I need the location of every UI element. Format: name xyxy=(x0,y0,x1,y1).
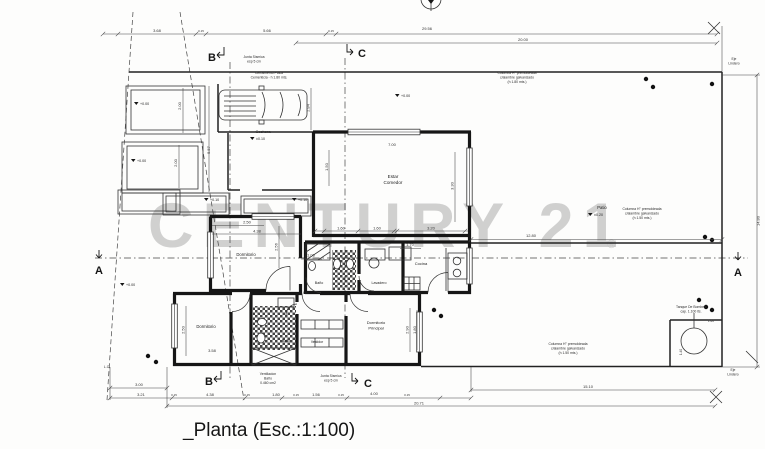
column-dot xyxy=(710,82,714,86)
dimension-label: 1.80 xyxy=(412,325,417,334)
century21-watermark: CENTURY 21 ® xyxy=(148,191,627,261)
dimension-label: 1.50 xyxy=(324,162,329,171)
car-top-view xyxy=(219,86,307,124)
level-marker: +0.00 xyxy=(126,283,135,287)
dimension-label: 0.15 xyxy=(171,393,177,397)
annotation-columna-right: Columna H° premoldeada xyxy=(622,207,661,211)
annotation-cerramiento-placa: Cerramiento Placa xyxy=(255,71,283,75)
annotation-columna-top-right: Columna H° premoldeada xyxy=(497,71,536,75)
dimension-label: 3.21 xyxy=(137,392,146,397)
annotation-tanque-bombeo: cap. 1.100 lts. xyxy=(680,309,701,313)
dimension-label: 20.71 xyxy=(414,401,425,406)
annotation-junta-sismica-top: esp 5 cm xyxy=(247,59,261,63)
annotation-columna-right: c/alambre galvanizado xyxy=(625,211,659,215)
dimension-label: 3.20 xyxy=(427,226,436,231)
level-marker: +0.10 xyxy=(298,198,307,202)
dimension-label: 4.38 xyxy=(206,392,215,397)
dimension-label: 2.90 xyxy=(405,325,410,334)
room-label-dormitorio-principal: Principal xyxy=(368,325,383,330)
section-letter-b-bottom: B xyxy=(205,376,213,388)
level-marker-icon xyxy=(120,283,125,286)
section-letter-a-right: A xyxy=(734,267,742,279)
room-label-dormitorio-1: Dormitorio xyxy=(236,252,256,257)
level-marker-icon xyxy=(134,102,139,105)
annotation-eje-lindero-bottom: Eje xyxy=(731,368,736,372)
room-label-patio: Patio xyxy=(597,205,607,210)
section-letter-c-bottom: C xyxy=(364,378,372,390)
column-dot xyxy=(146,354,150,358)
column-dot xyxy=(439,314,443,318)
annotation-ventilacion-banio: 0.460 cm2 xyxy=(260,381,276,385)
level-marker: +0.00 xyxy=(140,102,149,106)
north-compass-icon xyxy=(421,0,441,11)
annotation-eje-lindero-top: Lindero xyxy=(728,61,739,65)
dimension-label: 1.70 xyxy=(406,242,415,247)
pump-tank xyxy=(670,313,722,366)
level-marker: ±0.10 xyxy=(256,137,265,141)
dimension-label: 3.00 xyxy=(135,382,144,387)
room-label-hall: Hall xyxy=(303,291,309,295)
survey-cross-marks xyxy=(708,22,758,403)
dimension-label: 2.50 xyxy=(243,220,252,225)
dimension-label: 0.15 xyxy=(198,29,204,33)
annotation-columna-bottom: Columna H° premoldeada xyxy=(548,342,587,346)
dimension-label: 4.00 xyxy=(370,391,379,396)
dimension-label: 7.00 xyxy=(388,142,397,147)
column-dot xyxy=(651,85,655,89)
dimension-label: 2.84 xyxy=(306,103,311,112)
dimension-label: 3.68 xyxy=(153,28,162,33)
room-label-estar-comedor: Comedor xyxy=(384,180,403,185)
column-dot xyxy=(432,308,436,312)
dimension-label: 1.60 xyxy=(373,226,382,231)
registered-mark-icon: ® xyxy=(607,237,616,251)
annotation-junta-sismica-top: Junta Sismica xyxy=(243,55,264,59)
dimension-label: 15.10 xyxy=(583,384,594,389)
room-label-estar-comedor: Estar xyxy=(388,174,399,179)
annotation-ventilacion-banio: Baño xyxy=(264,376,272,380)
room-label-banio-2: Baño xyxy=(282,339,290,343)
dimension-label: 0.15 xyxy=(293,393,299,397)
dimension-label: 2.00 xyxy=(173,158,178,167)
dimension-label: 5.66 xyxy=(263,28,272,33)
dimension-label: 4.38 xyxy=(253,229,262,234)
floor-plan-drawing: CENTURY 21 ® xyxy=(0,0,765,449)
column-dot xyxy=(710,238,714,242)
room-label-cocina: Cocina xyxy=(415,261,428,266)
column-dot xyxy=(644,77,648,81)
annotation-eje-lindero-bottom: Lindero xyxy=(727,372,738,376)
section-letter-b-top: B xyxy=(208,52,216,64)
annotation-ventilacion-banio: Ventilacion xyxy=(260,372,277,376)
room-label-vestidor: Vestidor xyxy=(311,340,324,344)
dimension-label: 12.80 xyxy=(526,233,537,238)
column-dot xyxy=(154,360,158,364)
annotation-tanque-bombeo: Tanque De Bombeo xyxy=(676,305,706,309)
dimension-label: 3.30 xyxy=(450,181,455,190)
annotation-junta-sismica-bottom: esp 5 cm xyxy=(324,378,338,382)
column-dot xyxy=(710,308,714,312)
column-dot xyxy=(703,235,707,239)
annotation-lc-mark: L.C. xyxy=(104,365,110,369)
dimension-label: 1.80 xyxy=(272,392,281,397)
section-letter-c-top: C xyxy=(358,48,366,60)
plan-title: _Planta (Esc.:1:100) xyxy=(182,420,355,441)
dimension-label: 2.50 xyxy=(181,325,186,334)
dimension-label: 29.56 xyxy=(422,26,433,31)
dimension-label: 0.15 xyxy=(244,393,250,397)
annotation-cerramiento-placa: Cementicia - h 1.80 mts. xyxy=(251,75,288,79)
dimension-label: 0.15 xyxy=(338,393,344,397)
level-marker-icon xyxy=(395,94,400,97)
annotation-columna-right: (h 1.50 mts.) xyxy=(632,216,651,220)
dimension-label: 1.40 xyxy=(679,349,683,355)
annotation-columna-top-right: (h 1.80 mts.) xyxy=(507,80,526,84)
dimension-label: 5.57 xyxy=(206,145,211,154)
room-label-dormitorio-principal: Dormitorio xyxy=(367,320,386,325)
dimension-label: 0.15 xyxy=(404,393,410,397)
annotation-columna-bottom: c/alambre galvanizado xyxy=(551,346,585,350)
dimension-label: 3.58 xyxy=(208,348,217,353)
annotation-junta-sismica-bottom: Junta Sismica xyxy=(320,374,341,378)
level-marker-icon xyxy=(131,159,136,162)
watermark-text: CENTURY 21 xyxy=(148,191,627,261)
annotation-columna-top-right: c/alambre galvanizado xyxy=(500,75,534,79)
dimension-label: 1.56 xyxy=(312,392,321,397)
column-dot xyxy=(697,298,701,302)
level-marker-icon xyxy=(250,137,255,140)
dimension-label: 0.15 xyxy=(328,29,334,33)
dimension-label: 2.00 xyxy=(177,101,182,110)
dimension-label: 20.00 xyxy=(518,37,529,42)
dimension-label: 2.56 xyxy=(274,242,279,251)
level-marker: +0.00 xyxy=(137,159,146,163)
section-letter-a-left: A xyxy=(95,265,103,277)
room-label-cochera: Cochera xyxy=(255,129,271,134)
level-marker: +0.00 xyxy=(401,94,410,98)
dimension-label: 14.80 xyxy=(756,215,761,226)
level-marker: +0.10 xyxy=(210,198,219,202)
dimension-label: 1.60 xyxy=(337,226,346,231)
level-marker: ±0.20 xyxy=(594,213,603,217)
annotation-columna-bottom: (h 1.50 mts.) xyxy=(558,351,577,355)
room-label-lavadero: Lavadero xyxy=(372,281,387,285)
room-label-banio-1: Baño xyxy=(315,281,323,285)
room-label-dormitorio-2: Dormitorio xyxy=(196,324,216,329)
dimension-label: 1.60 xyxy=(708,319,714,323)
dimension-label: 1.06 xyxy=(307,253,316,258)
annotation-eje-lindero-top: Eje xyxy=(732,57,737,61)
